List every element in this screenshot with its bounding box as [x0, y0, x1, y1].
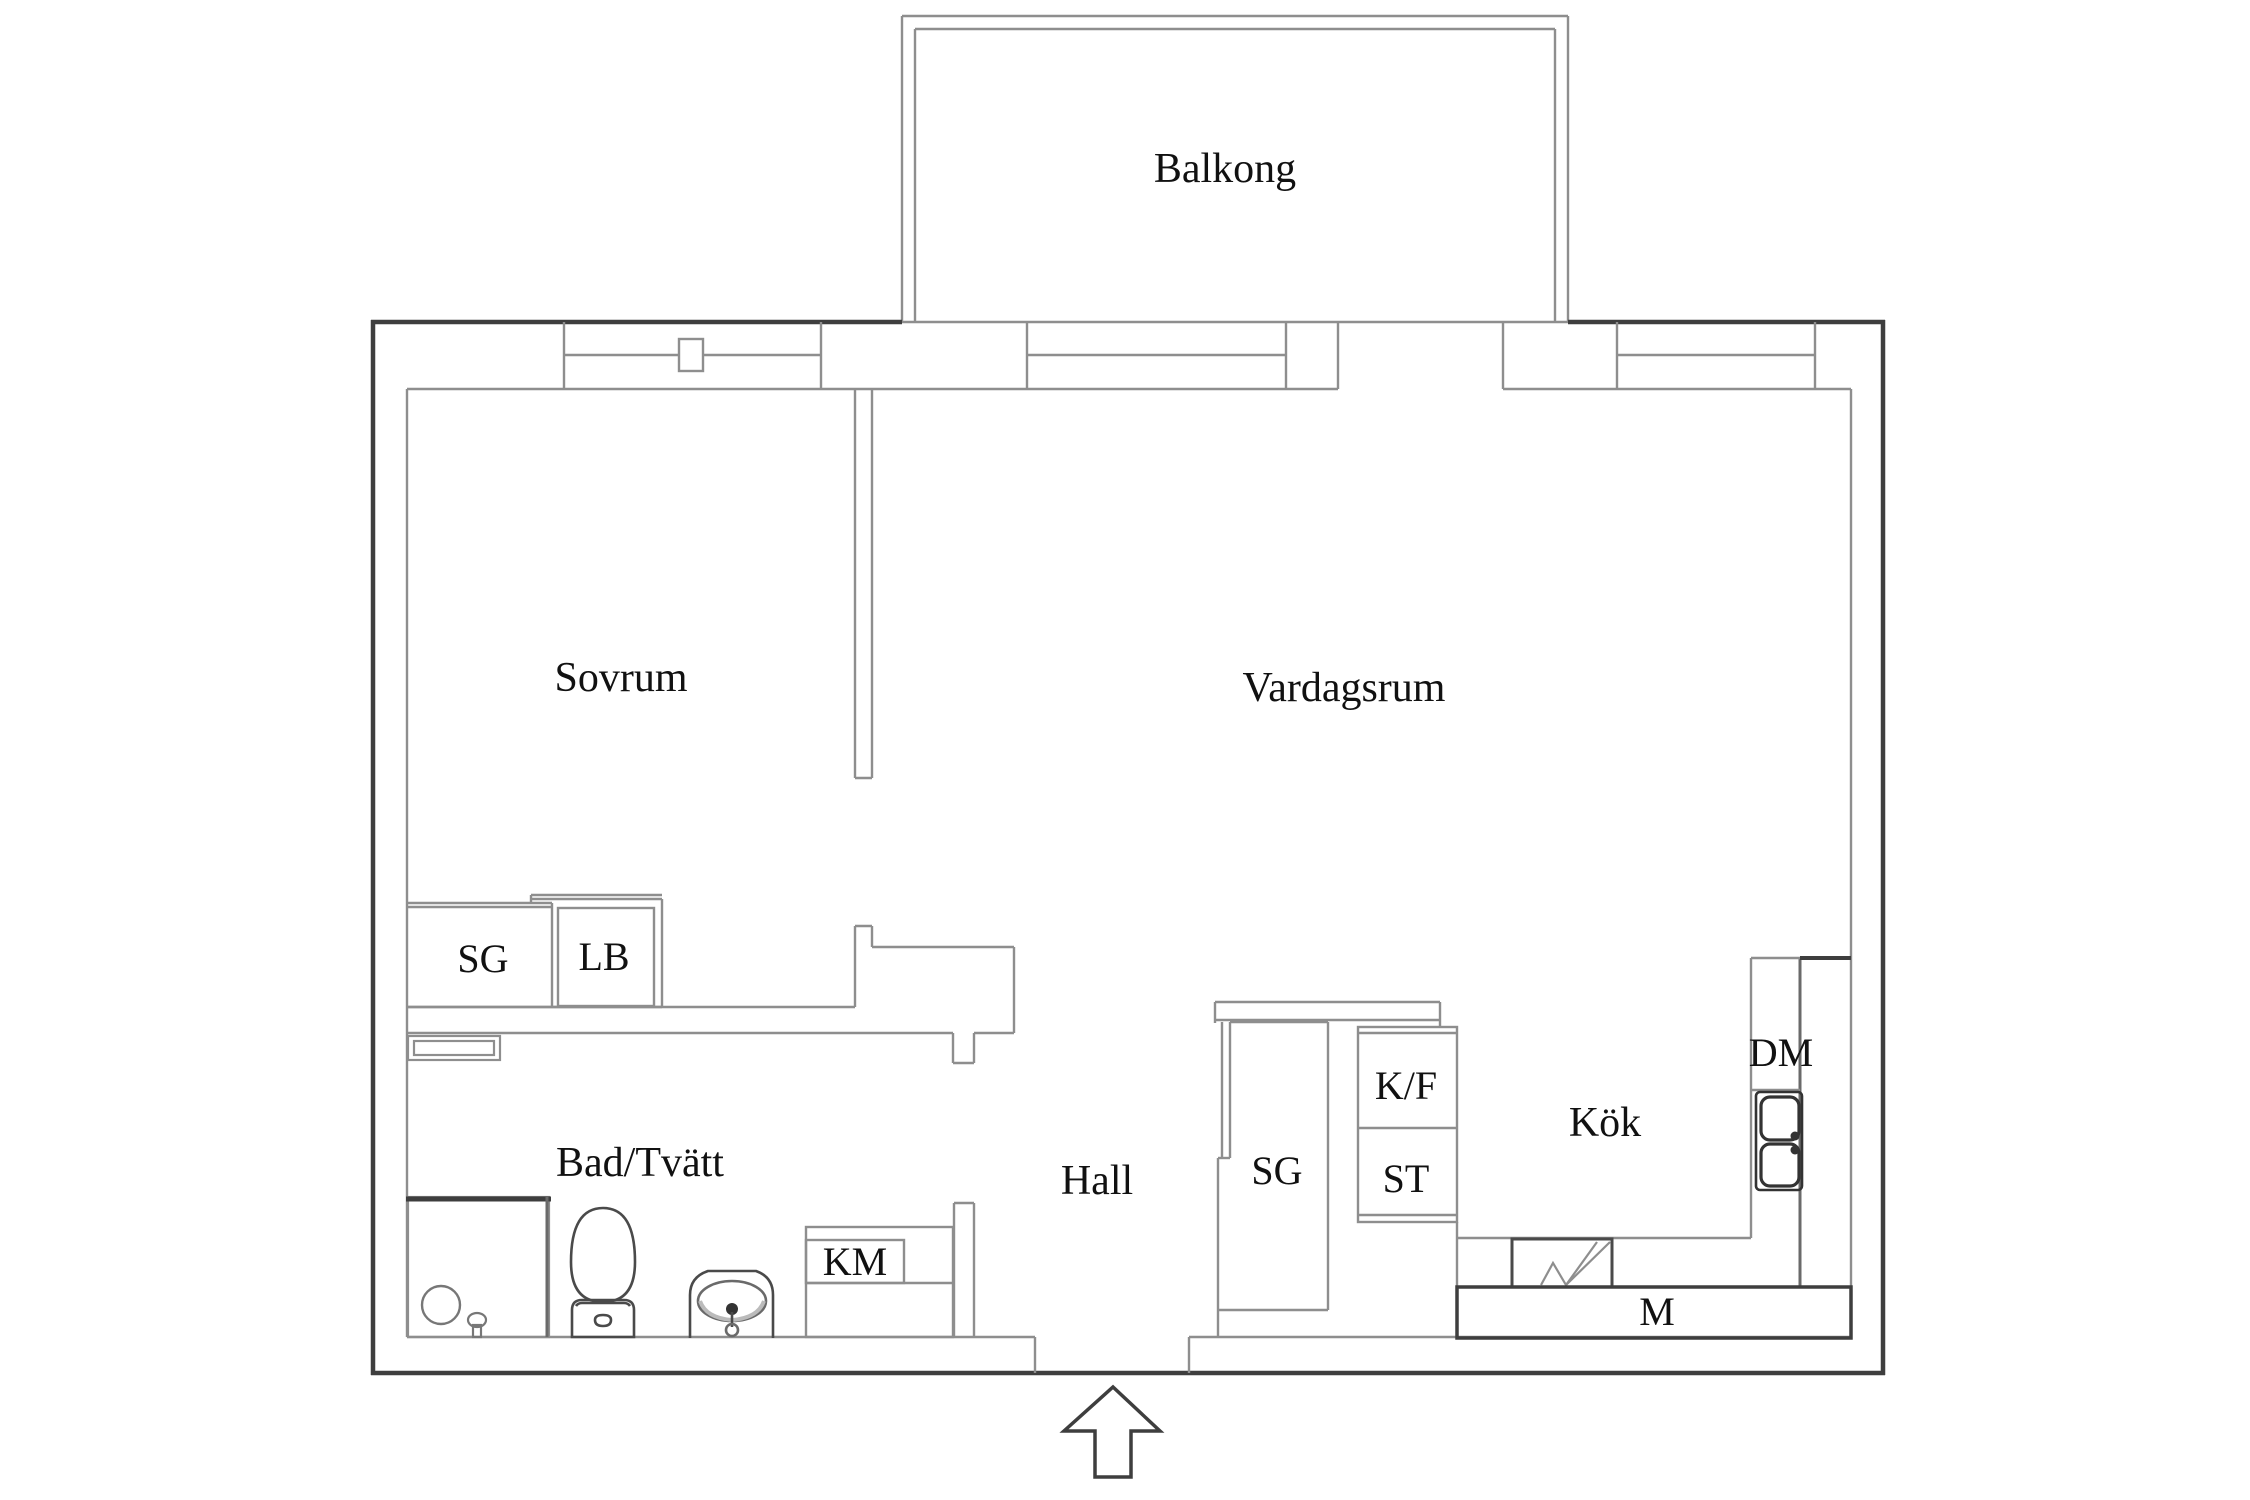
bathroom-door-stub-wall	[954, 1203, 974, 1337]
balcony-door-panel	[1286, 322, 1338, 389]
living-room-window-right	[1617, 322, 1815, 389]
bedroom-partition-wall	[855, 389, 872, 778]
bathroom-radiator	[408, 1036, 500, 1060]
outer-walls	[371, 320, 1885, 1375]
stove-icon	[1512, 1239, 1612, 1287]
floor-plan-drawing: Balkong Sovrum Vardagsrum Bad/Tvätt Hall…	[0, 0, 2250, 1500]
label-dishwasher: DM	[1749, 1030, 1813, 1075]
label-bathroom: Bad/Tvätt	[556, 1140, 724, 1186]
label-fridge-freezer: K/F	[1375, 1063, 1437, 1108]
label-bench-m: M	[1639, 1289, 1675, 1334]
label-linen-cabinet: LB	[578, 934, 629, 979]
label-washing-machine: KM	[823, 1239, 887, 1284]
bedroom-window	[564, 322, 821, 389]
living-room-window-left	[1027, 322, 1286, 389]
shower	[406, 1197, 551, 1337]
balcony-door-side-panel	[1503, 322, 1617, 389]
entrance-arrow-icon	[1064, 1387, 1160, 1477]
label-kitchen: Kök	[1569, 1100, 1641, 1146]
toilet-icon	[571, 1208, 635, 1337]
label-tall-cabinet: ST	[1383, 1156, 1430, 1201]
label-living-room: Vardagsrum	[1243, 665, 1446, 711]
label-balcony: Balkong	[1154, 146, 1296, 192]
floor-plan: Balkong Sovrum Vardagsrum Bad/Tvätt Hall…	[0, 0, 2250, 1500]
window-handle-icon	[679, 339, 703, 371]
label-bedroom-wardrobe: SG	[457, 936, 508, 981]
label-hall: Hall	[1061, 1158, 1133, 1204]
shower-drain-icon	[422, 1286, 460, 1324]
bathroom-sink-icon	[690, 1271, 773, 1338]
label-bedroom: Sovrum	[554, 655, 687, 701]
label-hall-wardrobe: SG	[1251, 1148, 1302, 1193]
entrance-door-jambs	[1035, 1310, 1218, 1373]
kitchen-sink-icon	[1756, 1092, 1802, 1190]
